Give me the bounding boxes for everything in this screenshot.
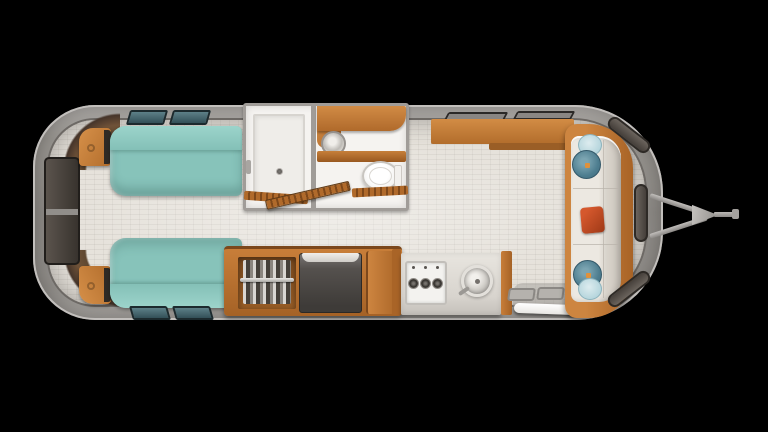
entry-step-2	[536, 287, 565, 300]
nightstand-top	[79, 128, 111, 166]
cooktop-knob-1	[412, 266, 415, 269]
cooktop-knob-3	[436, 266, 439, 269]
kitchen-side-panel-right	[501, 251, 512, 315]
hangers-icon	[243, 260, 291, 304]
twin-bed-top	[110, 126, 242, 196]
hitch-tongue	[714, 212, 734, 217]
burner-2	[420, 278, 431, 289]
cooktop-knob-2	[424, 266, 427, 269]
wardrobe-rail	[240, 278, 294, 282]
floorplan-scene	[0, 0, 768, 432]
shower-fixture-icon	[246, 160, 251, 174]
overhead-cabinet	[431, 119, 574, 144]
twin-bed-bottom	[110, 238, 242, 308]
nightstand-bottom	[79, 266, 111, 304]
galley-window-2	[513, 111, 576, 120]
vanity-counter	[317, 106, 406, 131]
hitch-tip	[732, 209, 739, 219]
bed-bolster	[110, 126, 242, 150]
vanity-shelf	[317, 151, 406, 162]
cupholder-icon	[87, 282, 95, 290]
rear-window-divider	[46, 209, 78, 215]
kitchen-side-panel-left	[392, 249, 401, 315]
bed-bolster	[110, 284, 242, 308]
square-pillow	[580, 206, 605, 234]
cupholder-icon	[87, 144, 95, 152]
overhead-cabinet-shelf	[489, 143, 573, 150]
cushion-seam	[573, 244, 619, 245]
burner-3	[432, 278, 443, 289]
sink-drain-icon	[475, 279, 480, 284]
burner-1	[408, 278, 419, 289]
round-pillow-dark-top	[572, 150, 601, 179]
entry-step-1	[507, 288, 536, 301]
bed-window-top-2	[169, 110, 211, 125]
pillow-button-icon	[585, 163, 590, 168]
round-pillow-light-bottom	[578, 278, 602, 300]
rear-window	[44, 157, 80, 265]
refrigerator	[299, 253, 362, 313]
shower-pan	[253, 114, 305, 200]
toilet-seat-line	[369, 167, 392, 185]
refrigerator-top	[302, 253, 359, 262]
cushion-seam	[573, 188, 619, 189]
front-window-middle	[634, 184, 648, 242]
bed-window-bottom-1	[129, 306, 171, 320]
bed-window-bottom-2	[172, 306, 214, 320]
bed-window-top-1	[126, 110, 168, 125]
toilet-tank	[394, 165, 402, 187]
shower-drain-icon	[276, 168, 283, 175]
